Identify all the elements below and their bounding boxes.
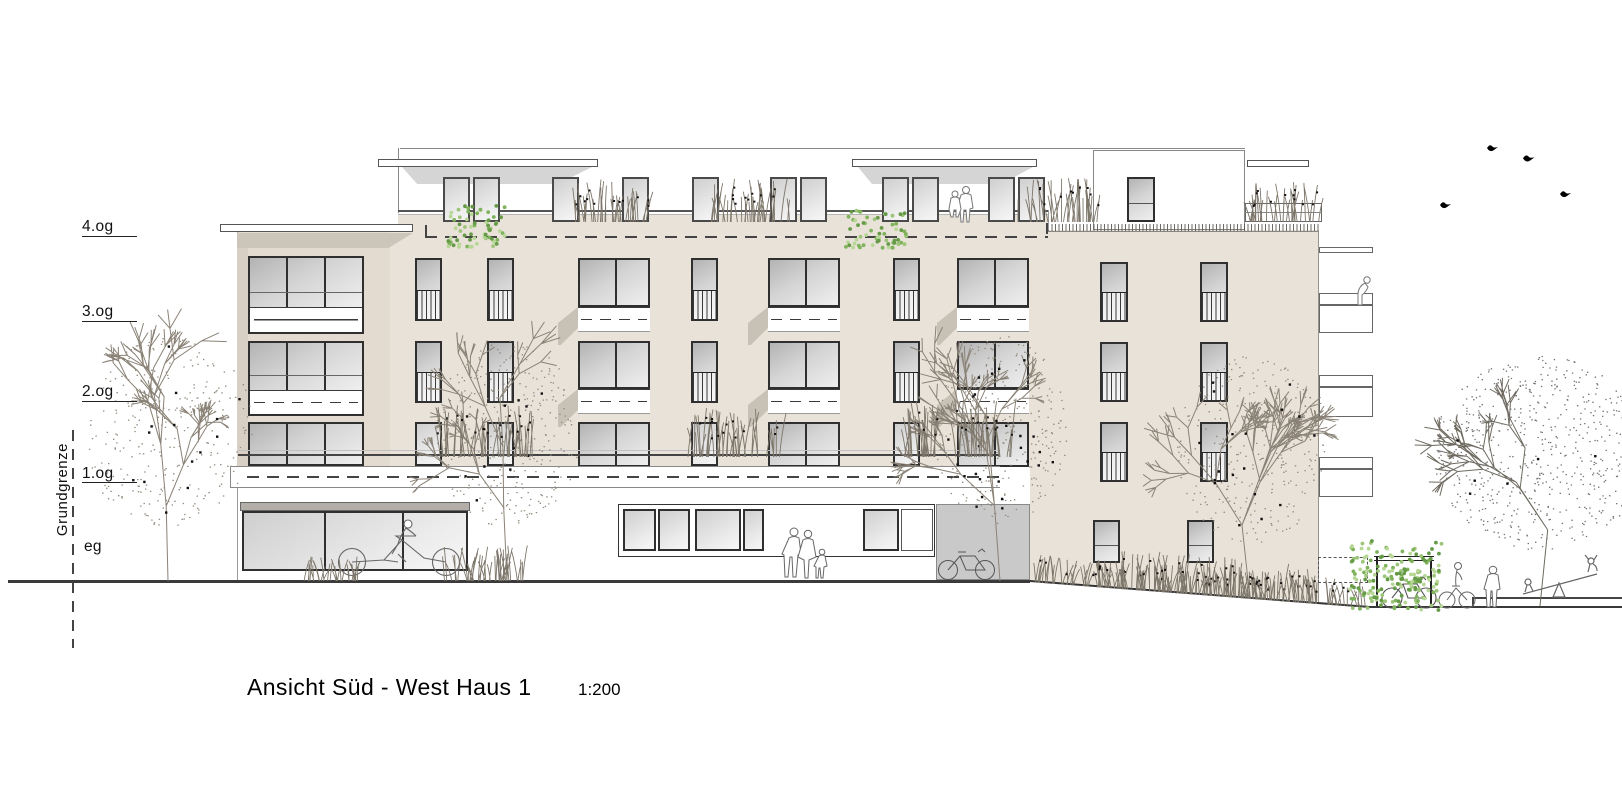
mullion	[286, 258, 288, 307]
penthouse-glass-door	[692, 177, 719, 222]
mullion	[615, 343, 617, 387]
storefront-b-pane	[743, 509, 764, 551]
mullion	[805, 424, 807, 465]
cyclist-right	[1439, 563, 1475, 609]
french-balcony-window	[1100, 342, 1128, 402]
french-balcony-window	[487, 258, 514, 321]
storefront-a-glazing	[242, 511, 468, 571]
balcony-window	[578, 258, 650, 307]
storefront-b-pane	[623, 509, 656, 551]
attic-block-right	[1093, 150, 1245, 230]
level-line-1og	[82, 482, 137, 483]
terrace-door	[487, 422, 514, 466]
balcony-parapet	[768, 389, 840, 414]
seesaw-children	[1523, 555, 1597, 597]
platform-wall-line	[1472, 597, 1622, 599]
balcony-railing-bars	[1102, 292, 1126, 320]
french-balcony-window	[691, 341, 718, 403]
window-sill-line	[1129, 203, 1153, 204]
balcony-profile-slab	[1319, 293, 1373, 305]
mullion	[324, 258, 326, 307]
balcony-railing-bars	[1102, 452, 1126, 480]
level-label-4og: 4.og	[82, 218, 113, 236]
balcony-railing-bars	[895, 290, 918, 319]
pergola-beam	[1374, 556, 1434, 561]
window-sill-line	[1095, 545, 1118, 546]
penthouse-left-edge	[398, 148, 399, 213]
tree-foliage-speckles	[1433, 357, 1622, 550]
french-balcony-window	[1100, 262, 1128, 322]
balcony-railing-bars	[895, 372, 918, 401]
mullion	[324, 343, 326, 390]
balcony-railing-bars	[417, 290, 440, 319]
loggia-parapet	[250, 307, 362, 332]
level-line-4og	[82, 236, 137, 237]
mullion	[286, 424, 288, 464]
tree-dark-flecks	[132, 347, 241, 513]
balcony-profile-slab	[1319, 375, 1373, 387]
window	[1093, 520, 1120, 563]
terrace-railing-toprail	[238, 450, 1000, 451]
penthouse-glass-door	[882, 177, 909, 222]
grass-seed-flecks	[1039, 188, 1100, 206]
transom	[250, 375, 362, 376]
drawing-scale: 1:200	[578, 680, 621, 700]
french-balcony-window	[1200, 342, 1228, 402]
mullion	[324, 513, 326, 569]
balcony-profile-slab	[1319, 457, 1373, 469]
window	[1187, 520, 1214, 563]
french-balcony-window	[1100, 422, 1128, 482]
level-line-3og	[82, 321, 137, 322]
penthouse-glass-door	[1018, 177, 1045, 222]
penthouse-glass-door	[988, 177, 1015, 222]
balcony-railing-bars	[489, 372, 512, 401]
window-sill-line	[1189, 545, 1212, 546]
mullion	[994, 260, 996, 305]
balcony-parapet	[578, 389, 650, 414]
loggia-glazing	[250, 258, 362, 307]
wing-roof-shadow	[237, 233, 413, 248]
elevation-drawing-canvas: 4.og 3.og 2.og 1.og eg Grundgrenze Ansic…	[0, 0, 1622, 795]
terrace-dashed-line	[247, 476, 1000, 478]
mullion	[286, 343, 288, 390]
mullion	[994, 424, 996, 465]
balcony-railing-bars	[1102, 372, 1126, 400]
loggia-window-4og	[248, 256, 364, 334]
balcony-window	[768, 422, 840, 467]
penthouse-glass-door	[800, 177, 827, 222]
level-label-2og: 2.og	[82, 383, 113, 401]
mullion	[615, 260, 617, 305]
attic-dashed-line	[425, 236, 1048, 238]
loggia-glazing	[250, 343, 362, 390]
balcony-parapet	[768, 307, 840, 332]
mullion	[994, 343, 996, 387]
balcony-window	[578, 422, 650, 467]
attic-dashed-stub-right	[1046, 223, 1048, 237]
parapet-dashed-line	[960, 319, 1026, 321]
level-label-1og: 1.og	[82, 465, 113, 483]
bird-icon	[1440, 145, 1571, 208]
property-boundary-line	[72, 430, 74, 648]
parapet-dashed-line	[581, 401, 647, 403]
balcony-railing-bars	[693, 290, 716, 319]
balcony-railing-bars	[1202, 292, 1226, 320]
balcony-parapet	[578, 307, 650, 332]
bike-storage-panel	[936, 504, 1030, 580]
ground-line-right	[1370, 606, 1622, 608]
storefront-b-pane	[695, 509, 741, 551]
parapet-dashed-line	[581, 319, 647, 321]
ground-line	[8, 580, 1030, 583]
loggia-parapet	[250, 390, 362, 414]
pergola-post	[1430, 556, 1432, 608]
penthouse-glass-door	[770, 177, 797, 222]
bicycle-under-pergola	[1382, 577, 1436, 608]
loggia-window-3og	[248, 341, 364, 416]
attic-step-line	[1048, 210, 1049, 230]
property-boundary-label: Grundgrenze	[54, 443, 71, 536]
balcony-railing-bars	[693, 372, 716, 401]
level-label-3og: 3.og	[82, 303, 113, 321]
balcony-window	[957, 258, 1029, 307]
balcony-window	[768, 341, 840, 389]
french-balcony-window	[1200, 422, 1228, 482]
terrace-door	[691, 422, 718, 466]
balcony-window	[957, 341, 1029, 389]
level-line-2og	[82, 401, 137, 402]
loggia-door-2og	[248, 422, 364, 466]
french-balcony-window	[1200, 262, 1228, 322]
penthouse-glass-door	[473, 177, 500, 222]
french-balcony-window	[691, 258, 718, 321]
penthouse-glass-door	[552, 177, 579, 222]
balcony-railing-bars	[417, 372, 440, 401]
parapet-dashed-line	[960, 401, 1026, 403]
tree-dark-flecks	[1456, 440, 1596, 493]
balcony-profile-body	[1319, 305, 1373, 333]
tree-foliage-speckles	[89, 339, 253, 525]
mullion	[615, 424, 617, 465]
mullion	[324, 424, 326, 464]
wing-roof-slab	[220, 224, 413, 232]
mullion	[805, 260, 807, 305]
balcony-parapet	[957, 307, 1029, 332]
balcony-window	[768, 258, 840, 307]
terrace-door	[415, 422, 442, 466]
wing-edge-shade	[237, 248, 248, 466]
balcony-profile-body	[1319, 469, 1373, 497]
penthouse-roof-line	[400, 148, 1245, 149]
balcony-window	[578, 341, 650, 389]
storefront-a-fascia	[240, 502, 470, 511]
penthouse-roof-slab-right	[852, 159, 1037, 167]
tree-branches	[102, 309, 229, 581]
transom	[250, 292, 362, 293]
standing-person	[1484, 566, 1500, 607]
penthouse-roof-slab-left	[378, 159, 598, 167]
french-balcony-window	[415, 341, 442, 403]
roof-slab-far-right	[1247, 160, 1309, 167]
mullion	[805, 343, 807, 387]
balcony-railing-bars	[1202, 372, 1226, 400]
balcony-parapet	[957, 389, 1029, 414]
platform-wall-edge	[1472, 597, 1474, 607]
drawing-title: Ansicht Süd - West Haus 1	[247, 674, 531, 701]
penthouse-glass-door	[622, 177, 649, 222]
storefront-b-pane	[863, 509, 899, 551]
attic-dashed-stub-left	[425, 225, 427, 237]
terrace-door	[893, 422, 920, 466]
french-balcony-window	[893, 341, 920, 403]
balcony-profile-slab	[1319, 247, 1373, 253]
window	[1127, 177, 1155, 222]
penthouse-glass-door	[912, 177, 939, 222]
mullion	[402, 513, 404, 569]
level-label-eg: eg	[84, 538, 102, 556]
terrace-railing	[238, 454, 1000, 456]
penthouse-glass-door	[443, 177, 470, 222]
roof-planter-line	[1245, 212, 1322, 213]
balcony-window	[957, 422, 1029, 467]
french-balcony-window	[415, 258, 442, 321]
storefront-b-pane	[658, 509, 690, 551]
french-balcony-window	[487, 341, 514, 403]
parapet-dashed-line	[771, 319, 837, 321]
green-roof-fringe	[1048, 224, 1319, 232]
balcony-railing-bars	[1202, 452, 1226, 480]
basement-dashed-outline	[1318, 557, 1368, 583]
tree-branches	[1415, 378, 1548, 606]
parapet-dashed-line	[771, 401, 837, 403]
storefront-b-pane-open	[901, 509, 933, 551]
french-balcony-window	[893, 258, 920, 321]
pergola-post	[1376, 556, 1378, 608]
balcony-profile-body	[1319, 387, 1373, 417]
balcony-railing-bars	[489, 290, 512, 319]
